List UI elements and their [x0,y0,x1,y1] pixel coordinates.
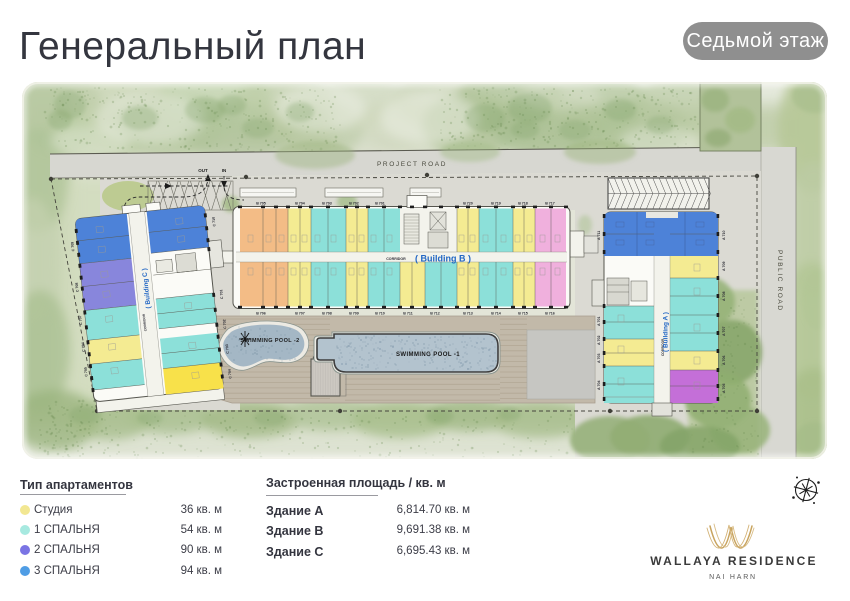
svg-text:NAI HARN: NAI HARN [709,574,757,581]
svg-text:A 705: A 705 [722,384,726,393]
svg-text:B 714: B 714 [491,312,501,316]
svg-text:A 703: A 703 [597,354,601,363]
svg-text:( Building B ): ( Building B ) [415,254,471,264]
svg-text:PUBLIC ROAD: PUBLIC ROAD [776,250,783,312]
svg-text:B 704: B 704 [295,202,305,206]
svg-text:A 704: A 704 [597,381,601,390]
svg-text:B 720: B 720 [463,202,473,206]
svg-text:B 716: B 716 [545,312,555,316]
svg-text:SWIMMING POOL -1: SWIMMING POOL -1 [396,352,460,358]
svg-text:B 708: B 708 [322,312,332,316]
svg-text:A 702: A 702 [597,336,601,345]
svg-text:B 709: B 709 [349,312,359,316]
svg-text:B 719: B 719 [491,202,501,206]
svg-text:PROJECT ROAD: PROJECT ROAD [377,161,447,168]
svg-text:B 706: B 706 [256,312,266,316]
svg-text:B 707: B 707 [295,312,305,316]
svg-text:B 703: B 703 [322,202,332,206]
svg-text:B 718: B 718 [518,202,528,206]
svg-text:A 707: A 707 [722,327,726,336]
svg-text:B 712: B 712 [430,312,440,316]
svg-text:A 709: A 709 [722,262,726,271]
svg-text:B 715: B 715 [518,312,528,316]
svg-text:B 710: B 710 [375,312,385,316]
svg-text:B 702: B 702 [349,202,359,206]
svg-text:CORRIDOR: CORRIDOR [386,257,406,261]
svg-text:A 701: A 701 [597,317,601,326]
svg-text:B 701: B 701 [375,202,385,206]
svg-text:A 706: A 706 [722,356,726,365]
svg-text:IN: IN [222,168,227,173]
svg-text:B 705: B 705 [256,202,266,206]
svg-text:B 717: B 717 [545,202,555,206]
svg-text:B 713: B 713 [463,312,473,316]
svg-text:A 711: A 711 [597,231,601,240]
svg-text:B 711: B 711 [403,312,412,316]
svg-text:A 710: A 710 [722,231,726,240]
svg-text:( Building A ): ( Building A ) [663,312,670,352]
svg-text:A 708: A 708 [722,292,726,301]
svg-text:WALLAYA RESIDENCE: WALLAYA RESIDENCE [650,554,817,568]
svg-text:OUT: OUT [198,168,208,173]
